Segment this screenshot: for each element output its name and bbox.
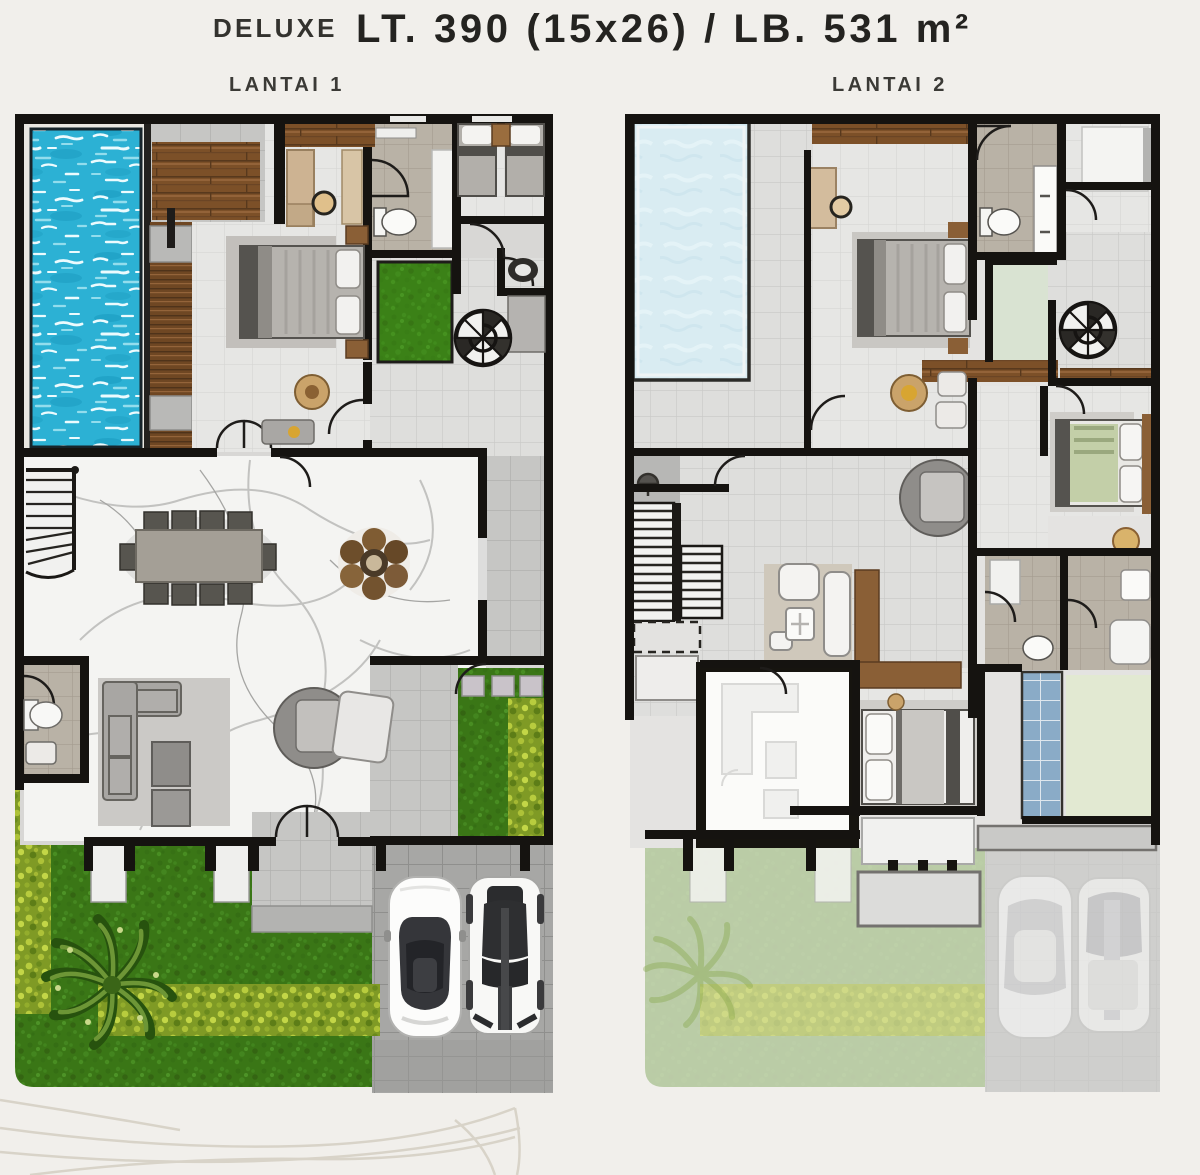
svg-text:LT. 390 (15x26) / LB. 531 m²: LT. 390 (15x26) / LB. 531 m² bbox=[356, 7, 972, 51]
svg-text:DELUXE: DELUXE bbox=[213, 13, 338, 43]
svg-text:LANTAI 1: LANTAI 1 bbox=[229, 74, 345, 96]
svg-text:LANTAI 2: LANTAI 2 bbox=[832, 74, 948, 96]
